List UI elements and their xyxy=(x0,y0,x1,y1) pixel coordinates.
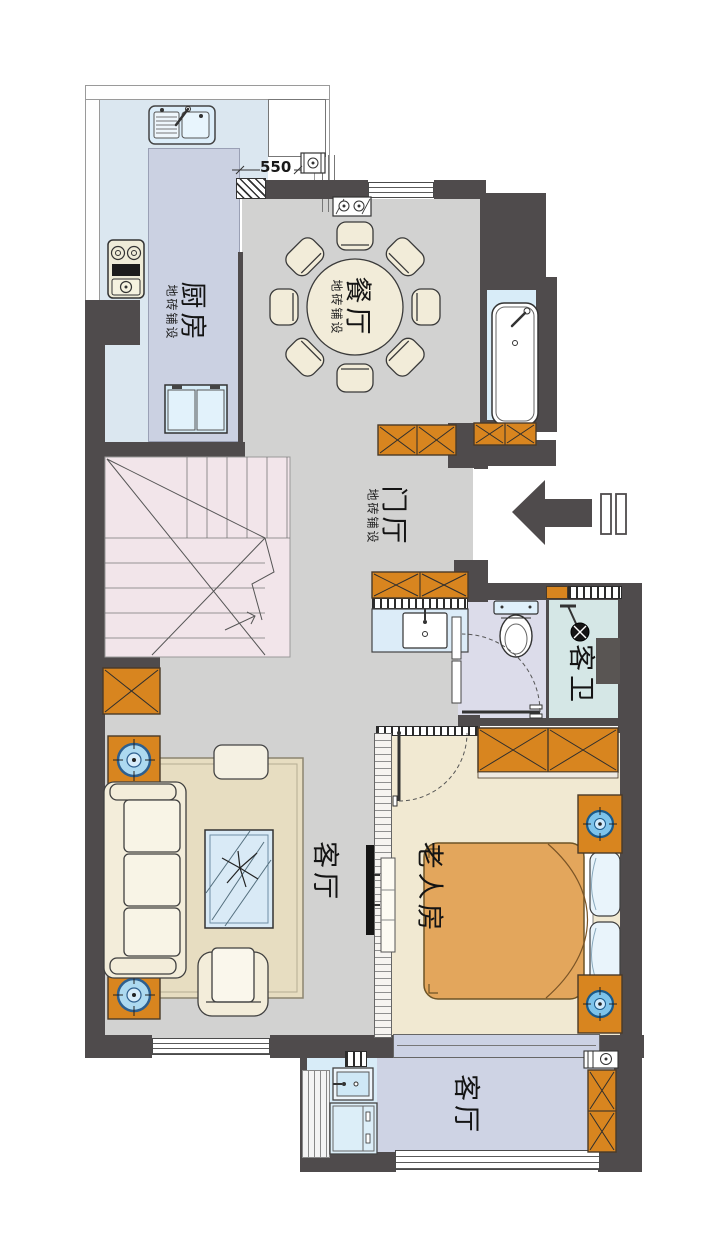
room-name: 餐厅 xyxy=(342,276,370,338)
washing-machine-icon xyxy=(330,1103,377,1154)
room-name: 老人房 xyxy=(414,842,442,935)
vanity-cabinet-icon xyxy=(372,572,468,598)
gas-meter-icon xyxy=(301,153,325,173)
room-name: 客厅 xyxy=(310,841,338,903)
shoe-cabinet-icon xyxy=(378,425,456,455)
toilet-icon xyxy=(494,601,538,657)
room-finish: 地砖铺设 xyxy=(330,279,343,335)
console-table-icon xyxy=(214,745,268,779)
cabinet-icon xyxy=(103,668,160,714)
balcony-cabinet-icon xyxy=(588,1070,616,1152)
floor-plan: 厨房 地砖铺设 餐厅 地砖铺设 门厅 地砖铺设 客卫 客厅 老人房 客厅 550 xyxy=(0,0,720,1256)
dimension-550: 550 xyxy=(260,158,291,176)
wardrobe-icon xyxy=(478,728,618,778)
room-name: 客卫 xyxy=(566,644,594,706)
kitchen-sink-icon xyxy=(149,106,215,144)
shower-icon xyxy=(560,606,589,641)
room-finish: 地砖铺设 xyxy=(165,284,178,340)
armchair-icon xyxy=(198,948,268,1016)
bedroom-door xyxy=(393,731,467,806)
pillow-icon xyxy=(590,852,620,986)
meter-icon xyxy=(584,1051,618,1068)
bathtub-icon xyxy=(492,303,538,425)
nightstand-icon xyxy=(578,975,622,1033)
furniture-layer xyxy=(0,0,720,1256)
fridge-icon xyxy=(165,385,227,433)
nightstand-icon xyxy=(578,795,622,853)
room-finish: 地砖铺设 xyxy=(366,488,379,544)
stove-icon xyxy=(108,240,144,298)
laundry-sink-icon xyxy=(333,1068,373,1100)
room-name: 厨房 xyxy=(177,281,205,343)
flue-icon xyxy=(333,197,371,216)
bed-icon xyxy=(424,843,593,999)
entrance-arrow-icon xyxy=(512,480,626,545)
dresser-icon xyxy=(381,858,395,952)
sofa-icon xyxy=(104,782,186,978)
room-name: 客厅 xyxy=(451,1074,479,1136)
room-name: 门厅 xyxy=(378,485,406,547)
tv-icon xyxy=(366,845,380,935)
side-table-plant-icon xyxy=(108,736,160,784)
coffee-table-icon xyxy=(205,830,273,928)
entry-cabinet-icon xyxy=(474,423,536,445)
staircase xyxy=(105,457,290,657)
